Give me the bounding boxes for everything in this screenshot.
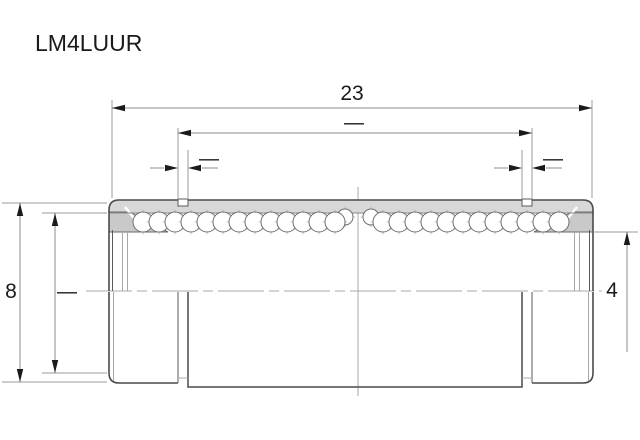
arrowhead-left bbox=[112, 105, 125, 111]
arrowhead-bottom bbox=[52, 360, 58, 373]
drawing-canvas: LM4LUUR bbox=[0, 0, 640, 440]
arrowhead-right bbox=[519, 130, 532, 136]
arrowhead-top bbox=[52, 213, 58, 226]
dim-value-seal-outer: — bbox=[57, 281, 77, 303]
right-cap-outline bbox=[532, 292, 593, 383]
bearing-technical-drawing: LM4LUUR bbox=[0, 0, 640, 440]
dim-right-groove: — bbox=[494, 148, 563, 199]
dim-value-left-groove: — bbox=[199, 148, 219, 170]
section-view bbox=[109, 199, 593, 291]
part-number-label: LM4LUUR bbox=[35, 30, 142, 56]
dim-value-overall-length: 23 bbox=[340, 82, 363, 105]
arrowhead-top bbox=[624, 232, 630, 245]
dim-value-right-groove: — bbox=[543, 148, 563, 170]
arrowhead-left bbox=[165, 165, 178, 171]
dim-groove-span: — bbox=[178, 112, 532, 199]
exterior-view bbox=[109, 292, 593, 387]
dim-value-outer-diameter: 8 bbox=[5, 280, 17, 303]
arrowhead-left bbox=[178, 130, 191, 136]
right-ring-groove-notch bbox=[522, 199, 532, 206]
dim-left-groove: — bbox=[150, 148, 219, 199]
left-ring-groove-notch bbox=[178, 199, 188, 206]
arrowhead-top bbox=[17, 203, 23, 216]
dim-value-bore-diameter: 4 bbox=[606, 279, 618, 302]
dim-bore-diameter: 4 bbox=[593, 232, 638, 352]
arrowhead-bottom bbox=[17, 369, 23, 382]
left-cap-outline bbox=[109, 292, 178, 383]
dim-overall-length: 23 bbox=[112, 82, 592, 198]
main-body-outline bbox=[188, 292, 522, 387]
arrowhead-left bbox=[509, 165, 522, 171]
dim-seal-outer: — bbox=[42, 213, 107, 373]
dim-value-groove-span: — bbox=[344, 112, 364, 134]
arrowhead-right bbox=[579, 105, 592, 111]
